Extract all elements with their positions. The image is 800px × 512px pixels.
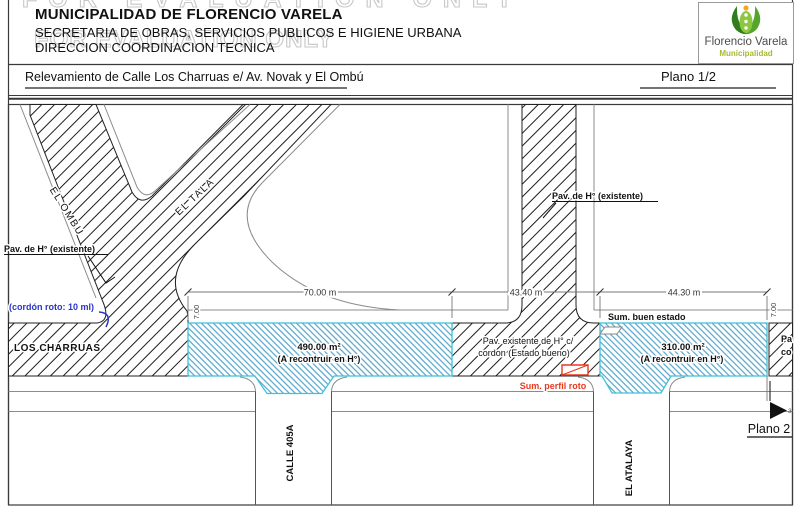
label-pav-east-clip-1: Pa	[781, 334, 793, 344]
area-east-note: (A recontruir en H°)	[641, 354, 724, 364]
logo-title: Florencio Varela	[699, 36, 793, 48]
drawing-title: Relevamiento de Calle Los Charruas e/ Av…	[25, 70, 364, 84]
logo-subtitle: Municipalidad	[699, 49, 793, 58]
sheet-number: Plano 1/2	[661, 69, 716, 84]
marker-number: 3	[788, 408, 792, 415]
dim-7m-east: 7.00	[769, 303, 778, 318]
label-pav-center-2: cordon (Estado bueno)	[478, 348, 570, 358]
street-label-calle-405a: CALLE 405A	[285, 424, 296, 481]
label-pav-existente-west: Pav. de H° (existente)	[4, 244, 95, 254]
area-west-note: (A recontruir en H°)	[278, 354, 361, 364]
label-pav-existente-north: Pav. de H° (existente)	[552, 191, 643, 201]
label-sum-buen-estado: Sum. buen estado	[608, 312, 686, 322]
area-west-value: 490.00 m²	[297, 342, 340, 353]
dim-70m: 70.00 m	[304, 288, 337, 298]
municipality-logo: Florencio Varela Municipalidad	[698, 2, 794, 64]
label-cordon-roto: (cordón roto: 10 ml)	[9, 302, 94, 312]
dim-7m-west: 7.00	[192, 305, 201, 320]
area-east-value: 310.00 m²	[661, 342, 704, 353]
dim-44m: 44.30 m	[668, 288, 701, 298]
org-subtitle-1: SECRETARIA DE OBRAS, SERVICIOS PUBLICOS …	[35, 25, 461, 40]
street-label-los-charruas: LOS CHARRUAS	[14, 343, 101, 354]
street-label-el-atalaya: EL ATALAYA	[624, 440, 635, 497]
label-plano-2: Plano 2	[748, 422, 790, 436]
org-subtitle-2: DIRECCION COORDINACION TECNICA	[35, 40, 275, 55]
org-title: MUNICIPALIDAD DE FLORENCIO VARELA	[35, 6, 343, 23]
dim-43m: 43.40 m	[510, 288, 543, 298]
plan-sheet: FOR EVALUATION ONLY FOR EVALUATION ONLY …	[0, 0, 800, 512]
logo-plant-icon	[699, 3, 793, 37]
label-pav-east-clip-2: co	[781, 347, 792, 357]
label-pav-center-1: Pav. existente de H° c/	[483, 336, 574, 346]
side-street-lines	[256, 392, 670, 506]
label-sum-perfil-roto: Sum. perfil roto	[520, 381, 587, 391]
continuation-arrow-icon	[770, 402, 787, 419]
